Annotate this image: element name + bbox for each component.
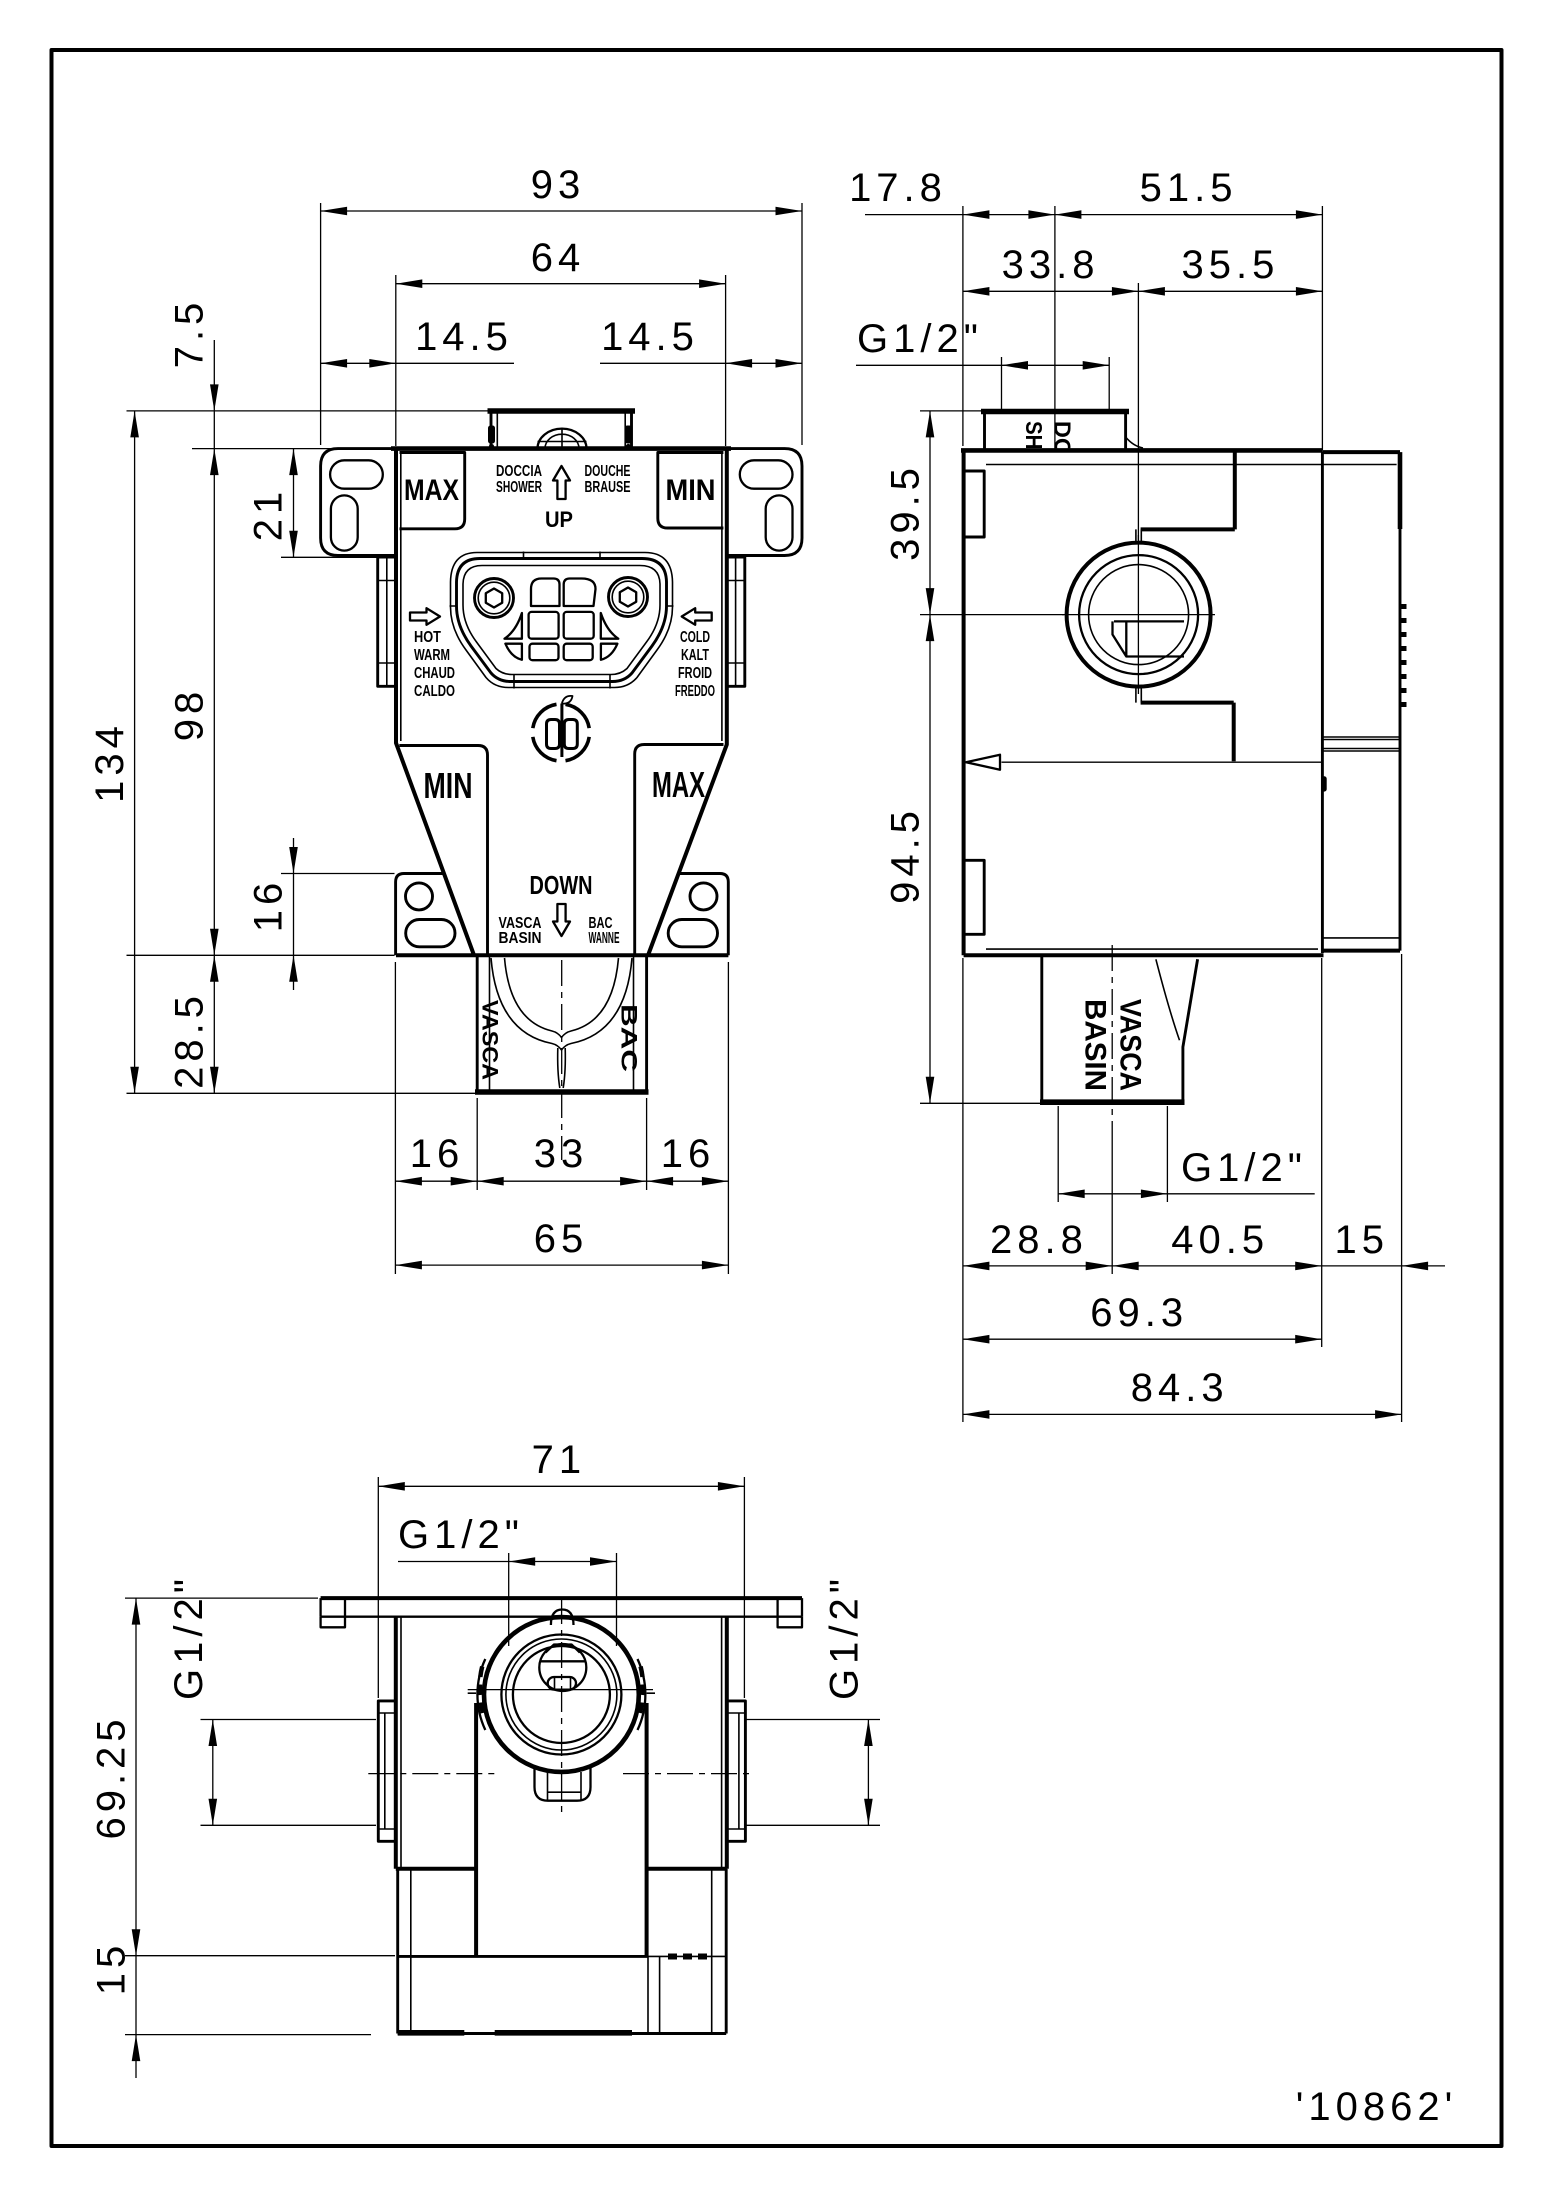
svg-text:VASCA: VASCA [1114,999,1147,1091]
svg-text:51.5: 51.5 [1140,166,1238,210]
svg-text:DOCCIA: DOCCIA [1050,421,1076,513]
svg-text:COLD: COLD [680,629,710,646]
svg-text:15: 15 [90,1941,134,1996]
svg-text:71: 71 [532,1438,587,1482]
svg-text:MIN: MIN [666,474,716,507]
svg-text:SHOWER: SHOWER [1021,421,1047,513]
svg-text:16: 16 [410,1132,465,1176]
svg-text:G1/2": G1/2" [1181,1146,1307,1190]
svg-text:16: 16 [661,1132,716,1176]
svg-text:DOUCHE: DOUCHE [585,463,631,480]
svg-text:FROID: FROID [678,665,712,682]
svg-text:134: 134 [88,721,132,803]
svg-text:84.3: 84.3 [1131,1366,1229,1410]
svg-text:G1/2": G1/2" [167,1574,211,1700]
svg-text:CALDO: CALDO [414,683,455,700]
svg-text:64: 64 [531,236,586,280]
svg-text:CHAUD: CHAUD [414,665,455,682]
svg-text:39.5: 39.5 [884,463,928,561]
svg-text:HOT: HOT [414,629,441,646]
svg-text:MAX: MAX [652,764,705,805]
svg-text:BRAUSE: BRAUSE [585,479,631,496]
svg-text:16: 16 [247,878,291,933]
svg-text:UP: UP [545,507,573,532]
svg-text:15: 15 [1335,1218,1390,1262]
svg-text:69.25: 69.25 [90,1714,134,1839]
svg-text:VASCA: VASCA [478,1000,503,1080]
svg-text:35.5: 35.5 [1181,243,1279,287]
svg-text:'10862': '10862' [1296,2085,1458,2129]
svg-text:17.8: 17.8 [849,166,947,210]
svg-text:65: 65 [534,1217,589,1261]
svg-text:14.5: 14.5 [415,315,513,359]
svg-text:MIN: MIN [424,765,473,806]
svg-text:21: 21 [247,487,291,542]
svg-text:G1/2": G1/2" [398,1513,524,1557]
svg-text:7.5: 7.5 [168,298,212,369]
svg-text:98: 98 [168,687,212,742]
svg-text:33.8: 33.8 [1002,243,1100,287]
svg-text:BASIN: BASIN [1079,999,1112,1091]
svg-text:BASIN: BASIN [499,930,542,947]
svg-text:BAC: BAC [617,1004,642,1072]
svg-text:FREDDO: FREDDO [675,683,715,700]
svg-text:MAX: MAX [404,474,459,507]
svg-text:SHOWER: SHOWER [496,479,542,496]
svg-text:93: 93 [531,163,586,207]
svg-text:WANNE: WANNE [589,930,620,947]
svg-text:28.5: 28.5 [168,991,212,1089]
svg-text:DOWN: DOWN [530,870,593,900]
svg-text:94.5: 94.5 [884,806,928,904]
svg-text:KALT: KALT [681,647,709,664]
svg-text:DOCCIA: DOCCIA [496,463,542,480]
svg-text:G1/2": G1/2" [823,1574,867,1700]
svg-text:33: 33 [534,1132,589,1176]
svg-text:14.5: 14.5 [601,315,699,359]
svg-text:G1/2": G1/2" [857,317,983,361]
svg-text:40.5: 40.5 [1171,1218,1269,1262]
svg-text:WARM: WARM [414,647,450,664]
svg-text:28.8: 28.8 [990,1218,1088,1262]
svg-text:69.3: 69.3 [1090,1291,1188,1335]
